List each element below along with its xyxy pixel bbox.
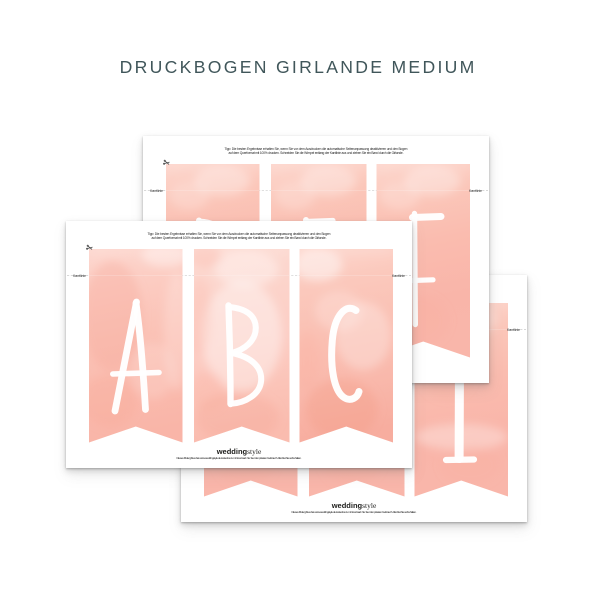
svg-text:Dieses Motiv gibt es bei www.w: Dieses Motiv gibt es bei www.weddingstyl… — [177, 455, 302, 459]
svg-text:Kantlinie: Kantlinie — [507, 328, 520, 332]
svg-text:auf dem Querformat mit 100% dr: auf dem Querformat mit 100% drucken. Sch… — [152, 235, 327, 239]
svg-text:auf dem Querformat mit 100% dr: auf dem Querformat mit 100% drucken. Sch… — [229, 150, 404, 154]
svg-text:Kantlinie: Kantlinie — [73, 274, 86, 278]
svg-text:Kantlinie: Kantlinie — [150, 189, 163, 193]
svg-text:Kantlinie: Kantlinie — [392, 274, 405, 278]
svg-text:Dieses Motiv gibt es bei www.w: Dieses Motiv gibt es bei www.weddingstyl… — [292, 509, 417, 513]
svg-text:Kantlinie: Kantlinie — [469, 189, 482, 193]
